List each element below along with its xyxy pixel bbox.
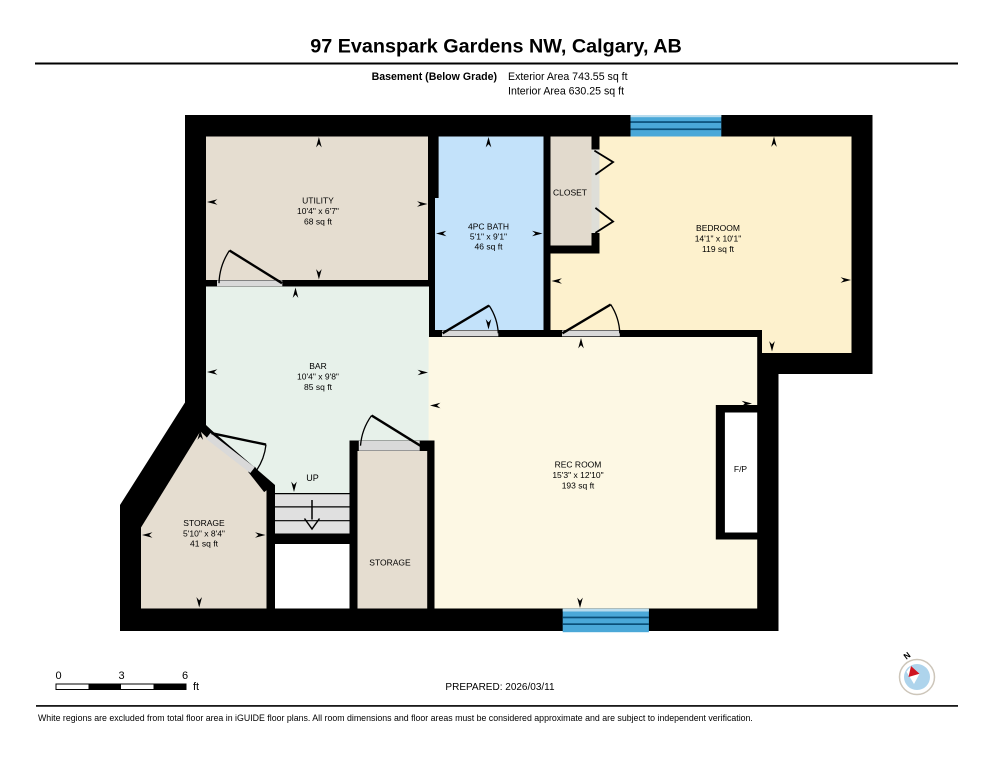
svg-text:ft: ft	[193, 681, 199, 693]
svg-text:White regions are excluded fro: White regions are excluded from total fl…	[38, 713, 753, 723]
svg-text:119 sq ft: 119 sq ft	[702, 244, 735, 254]
svg-text:41 sq ft: 41 sq ft	[190, 539, 219, 549]
svg-text:6: 6	[182, 670, 188, 682]
svg-text:REC ROOM: REC ROOM	[555, 460, 602, 470]
svg-text:PREPARED: 2026/03/11: PREPARED: 2026/03/11	[445, 682, 555, 693]
svg-text:5'10" x 8'4": 5'10" x 8'4"	[183, 529, 225, 539]
svg-text:UP: UP	[306, 473, 319, 483]
svg-text:4PC BATH: 4PC BATH	[468, 222, 509, 232]
svg-text:14'1" x 10'1": 14'1" x 10'1"	[695, 234, 742, 244]
svg-text:Exterior Area 743.55 sq ft: Exterior Area 743.55 sq ft	[508, 71, 628, 83]
svg-text:F/P: F/P	[734, 464, 748, 474]
svg-text:68 sq ft: 68 sq ft	[304, 217, 333, 227]
svg-text:STORAGE: STORAGE	[369, 558, 411, 568]
svg-text:10'4" x 9'8": 10'4" x 9'8"	[297, 372, 339, 382]
svg-text:BEDROOM: BEDROOM	[696, 223, 740, 233]
svg-text:UTILITY: UTILITY	[302, 196, 334, 206]
svg-text:5'1" x 9'1": 5'1" x 9'1"	[470, 232, 507, 242]
svg-text:Basement (Below Grade): Basement (Below Grade)	[372, 71, 497, 83]
svg-text:85 sq ft: 85 sq ft	[304, 382, 333, 392]
svg-text:10'4" x 6'7": 10'4" x 6'7"	[297, 206, 339, 216]
svg-text:15'3" x 12'10": 15'3" x 12'10"	[552, 470, 603, 480]
svg-text:Interior Area 630.25 sq ft: Interior Area 630.25 sq ft	[508, 86, 624, 98]
svg-text:193 sq ft: 193 sq ft	[562, 481, 595, 491]
svg-text:97 Evanspark Gardens NW, Calga: 97 Evanspark Gardens NW, Calgary, AB	[310, 36, 682, 58]
svg-text:46 sq ft: 46 sq ft	[475, 242, 504, 252]
svg-text:CLOSET: CLOSET	[553, 188, 587, 198]
svg-text:3: 3	[118, 670, 124, 682]
svg-text:STORAGE: STORAGE	[183, 518, 225, 528]
svg-text:BAR: BAR	[309, 361, 326, 371]
svg-text:0: 0	[55, 670, 61, 682]
